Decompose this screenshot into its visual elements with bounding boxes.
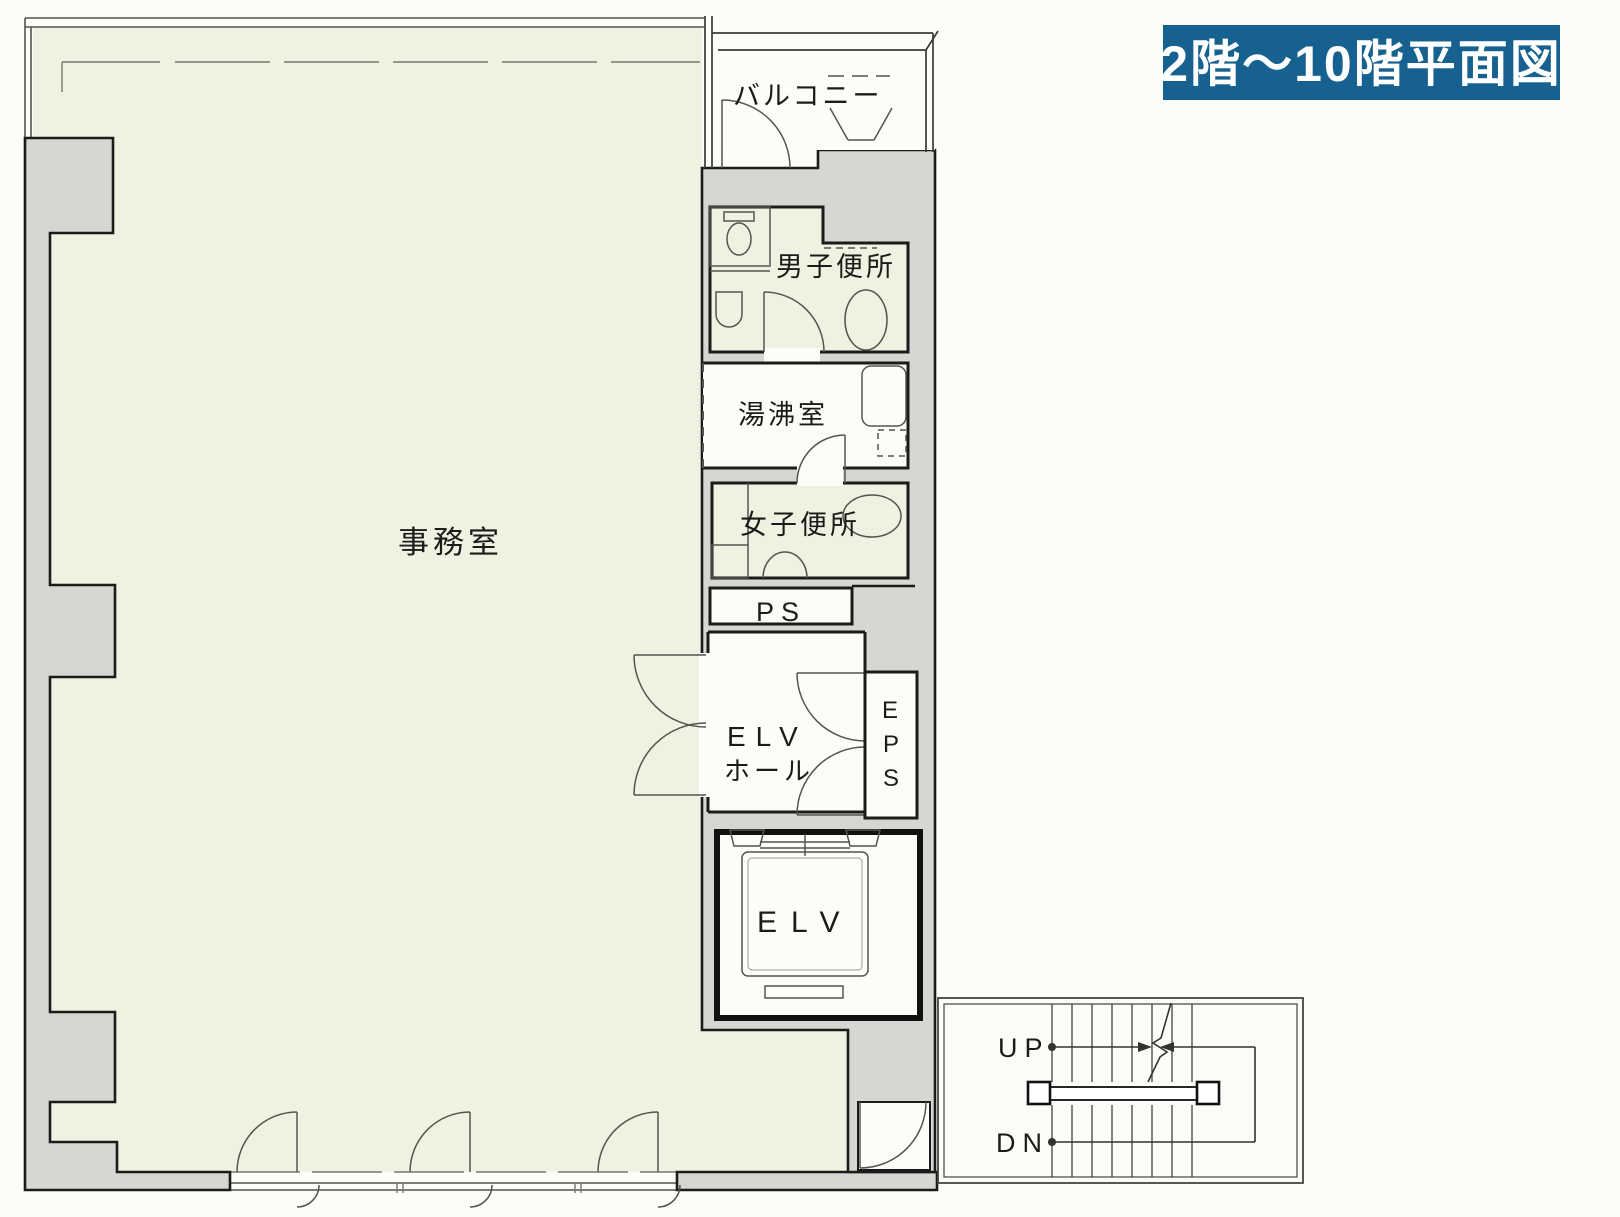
kitchenette-label: 湯沸室 (738, 400, 828, 430)
eps-letter-s: S (883, 765, 899, 792)
elevator-hall-label-2: ホール (724, 756, 814, 786)
stair-door-recess (858, 1102, 930, 1170)
floor-plan-page: 事務室 バルコニー (0, 0, 1620, 1217)
eps-letter-p: P (883, 731, 899, 758)
mens-toilet-label: 男子便所 (776, 252, 896, 282)
balcony-label: バルコニー (733, 81, 882, 111)
title-badge-text: 2階〜10階平面図 (1160, 36, 1561, 92)
title-badge: 2階〜10階平面図 (1160, 25, 1561, 100)
room-eps: E P S (865, 672, 917, 818)
stairwell: UP DN (938, 998, 1303, 1183)
womens-doorway (797, 464, 843, 486)
room-kitchenette: 湯沸室 (703, 363, 908, 468)
eps-letter-e: E (882, 697, 898, 724)
womens-toilet-label: 女子便所 (740, 510, 860, 540)
stairs-down-label: DN (996, 1128, 1049, 1158)
room-balcony: バルコニー (705, 16, 938, 168)
bottom-right-wall (677, 1172, 937, 1190)
elevator-label: ELV (757, 906, 853, 939)
room-pipe-space: PS (710, 588, 852, 627)
hall-doorway-west (699, 653, 711, 797)
stairs-up-label: UP (998, 1033, 1050, 1063)
floor-plan-drawing: 事務室 バルコニー (0, 0, 1620, 1217)
room-elevator: ELV (717, 830, 920, 1018)
elevator-hall-label-1: ELV (727, 721, 808, 752)
pipe-space-label: PS (756, 597, 806, 627)
office-label: 事務室 (398, 525, 503, 560)
recess-floor (858, 1102, 930, 1170)
